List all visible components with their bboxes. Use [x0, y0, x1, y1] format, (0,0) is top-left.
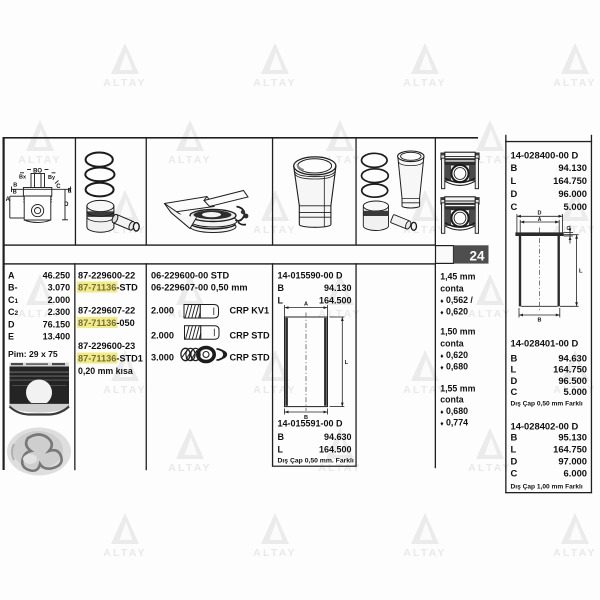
- svg-text:ALTAY: ALTAY: [18, 154, 61, 166]
- svg-text:14-015590-00 D: 14-015590-00 D: [278, 271, 344, 281]
- svg-text:C: C: [567, 226, 571, 232]
- svg-text:♦ 0,562 /: ♦ 0,562 /: [440, 295, 473, 305]
- svg-text:By: By: [48, 175, 56, 181]
- svg-text:87-71136-STD1: 87-71136-STD1: [78, 354, 143, 364]
- svg-text:87-71136-STD: 87-71136-STD: [78, 283, 138, 293]
- svg-text:2.300: 2.300: [48, 307, 71, 317]
- svg-text:ALTAY: ALTAY: [403, 547, 446, 559]
- svg-text:ALTAY: ALTAY: [553, 77, 596, 89]
- svg-text:ALTAY: ALTAY: [253, 547, 296, 559]
- svg-text:B: B: [511, 432, 518, 443]
- svg-text:L: L: [278, 295, 284, 305]
- svg-text:87-229600-22: 87-229600-22: [78, 270, 135, 280]
- svg-text:ALTAY: ALTAY: [253, 224, 296, 236]
- svg-text:ALTAY: ALTAY: [253, 384, 296, 396]
- svg-text:L: L: [511, 444, 517, 455]
- svg-text:ALTAY: ALTAY: [168, 462, 211, 474]
- svg-text:C: C: [56, 184, 61, 190]
- svg-text:164.500: 164.500: [319, 444, 352, 454]
- svg-text:D: D: [538, 210, 542, 216]
- svg-text:164.750: 164.750: [553, 364, 587, 375]
- svg-text:A: A: [304, 302, 308, 308]
- svg-text:ALTAY: ALTAY: [253, 77, 296, 89]
- svg-text:E: E: [8, 332, 14, 342]
- svg-text:5.000: 5.000: [564, 201, 587, 212]
- svg-text:Dış Çap 0,50 mm Farklı: Dış Çap 0,50 mm Farklı: [511, 401, 583, 408]
- svg-text:D: D: [511, 375, 518, 386]
- svg-text:14-015591-00 D: 14-015591-00 D: [278, 419, 344, 429]
- svg-text:B-: B-: [8, 283, 18, 293]
- svg-text:L: L: [579, 269, 583, 275]
- svg-text:94.130: 94.130: [324, 283, 352, 293]
- svg-text:conta: conta: [440, 283, 464, 293]
- svg-text:ALTAY: ALTAY: [403, 77, 446, 89]
- svg-text:B: B: [511, 353, 518, 364]
- svg-text:87-229607-22: 87-229607-22: [78, 306, 135, 316]
- svg-text:87-229600-23: 87-229600-23: [78, 341, 135, 351]
- svg-text:C: C: [511, 468, 518, 479]
- svg-text:46.250: 46.250: [43, 270, 71, 280]
- svg-text:conta: conta: [440, 338, 464, 348]
- svg-text:164.750: 164.750: [553, 444, 587, 455]
- svg-text:Bx: Bx: [19, 174, 27, 180]
- svg-text:76.150: 76.150: [43, 319, 71, 329]
- svg-text:14-028402-00 D: 14-028402-00 D: [511, 420, 579, 431]
- svg-text:ALTAY: ALTAY: [103, 77, 146, 89]
- svg-text:14-028400-00 D: 14-028400-00 D: [511, 150, 579, 161]
- svg-text:C2: C2: [8, 307, 19, 317]
- svg-text:B: B: [278, 432, 285, 442]
- svg-text:♦ 0,680: ♦ 0,680: [440, 406, 468, 416]
- svg-text:B: B: [278, 283, 285, 293]
- svg-text:CRP STD: CRP STD: [230, 331, 271, 341]
- svg-text:♦ 0,620: ♦ 0,620: [440, 307, 468, 317]
- svg-text:CRP KV1: CRP KV1: [230, 306, 270, 316]
- svg-text:1,55 mm: 1,55 mm: [440, 383, 475, 393]
- svg-text:D: D: [64, 202, 69, 208]
- svg-text:97.000: 97.000: [558, 456, 587, 467]
- svg-text:D: D: [511, 456, 518, 467]
- svg-text:2.000: 2.000: [48, 295, 71, 305]
- svg-text:164.500: 164.500: [319, 295, 352, 305]
- svg-text:ALTAY: ALTAY: [103, 547, 146, 559]
- svg-text:2.000: 2.000: [151, 331, 174, 341]
- svg-text:conta: conta: [440, 395, 464, 405]
- svg-text:C1: C1: [8, 295, 19, 305]
- svg-text:ALTAY: ALTAY: [553, 547, 596, 559]
- svg-text:C: C: [511, 201, 518, 212]
- svg-text:5.000: 5.000: [564, 386, 587, 397]
- svg-text:B: B: [538, 318, 542, 324]
- svg-text:94.130: 94.130: [558, 162, 587, 173]
- svg-text:13.400: 13.400: [43, 332, 71, 342]
- svg-text:6.000: 6.000: [564, 468, 587, 479]
- svg-text:L: L: [511, 175, 517, 186]
- svg-text:24: 24: [469, 249, 485, 264]
- svg-text:0,20 mm kısa: 0,20 mm kısa: [78, 366, 133, 376]
- svg-text:06-229607-00 0,50 mm: 06-229607-00 0,50 mm: [151, 283, 248, 293]
- svg-text:94.630: 94.630: [558, 353, 587, 364]
- svg-text:E: E: [68, 188, 72, 194]
- svg-text:164.750: 164.750: [553, 175, 587, 186]
- svg-text:Pim: 29 x 75: Pim: 29 x 75: [8, 349, 58, 359]
- svg-text:L: L: [511, 364, 517, 375]
- svg-text:Dış Çap 1,00 mm Farklı: Dış Çap 1,00 mm Farklı: [511, 484, 583, 491]
- svg-text:CRP STD: CRP STD: [230, 353, 271, 363]
- svg-text:B: B: [511, 162, 518, 173]
- svg-text:L: L: [345, 360, 349, 366]
- svg-text:L: L: [278, 444, 284, 454]
- svg-text:3.000: 3.000: [151, 353, 174, 363]
- svg-text:ALTAY: ALTAY: [168, 154, 211, 166]
- svg-text:A: A: [538, 217, 542, 223]
- svg-text:96.000: 96.000: [558, 188, 587, 199]
- svg-text:BO: BO: [33, 169, 42, 175]
- svg-text:1,45 mm: 1,45 mm: [440, 272, 475, 282]
- svg-text:87-71136-050: 87-71136-050: [78, 318, 135, 328]
- svg-text:ALTAY: ALTAY: [103, 384, 146, 396]
- svg-text:♦ 0,620: ♦ 0,620: [440, 350, 468, 360]
- svg-text:B: B: [13, 182, 17, 188]
- svg-text:B: B: [13, 190, 17, 196]
- svg-text:A: A: [6, 197, 11, 203]
- svg-text:♦ 0,774: ♦ 0,774: [440, 418, 468, 428]
- svg-text:3.070: 3.070: [48, 283, 71, 293]
- svg-text:94.630: 94.630: [324, 432, 352, 442]
- svg-text:06-229600-00 STD: 06-229600-00 STD: [151, 270, 230, 280]
- svg-text:A: A: [8, 270, 15, 280]
- svg-text:D: D: [511, 188, 518, 199]
- svg-text:95.130: 95.130: [558, 432, 587, 443]
- svg-text:2.000: 2.000: [151, 306, 174, 316]
- svg-text:♦ 0,680: ♦ 0,680: [440, 361, 468, 371]
- svg-text:C: C: [511, 386, 518, 397]
- svg-text:96.500: 96.500: [558, 375, 587, 386]
- svg-text:1,50 mm: 1,50 mm: [440, 327, 475, 337]
- svg-text:D: D: [8, 319, 15, 329]
- svg-text:Dış Çap 0,50 mm. Farklı: Dış Çap 0,50 mm. Farklı: [278, 458, 354, 465]
- svg-text:14-028401-00 D: 14-028401-00 D: [511, 338, 579, 349]
